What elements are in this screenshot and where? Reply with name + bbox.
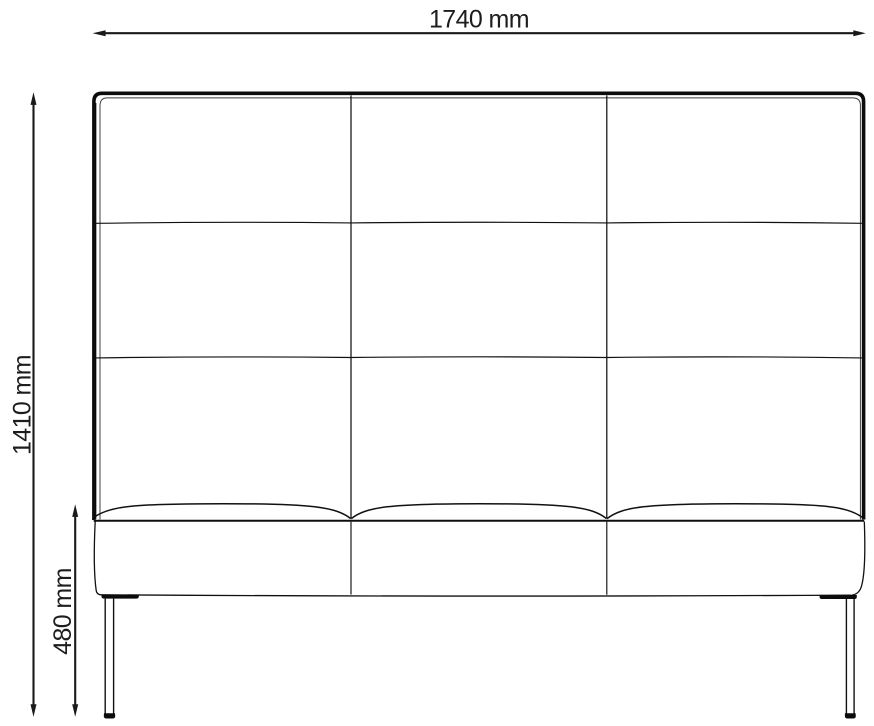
svg-text:1740 mm: 1740 mm: [429, 5, 529, 33]
svg-text:480 mm: 480 mm: [49, 568, 77, 655]
svg-text:1410 mm: 1410 mm: [9, 355, 37, 455]
